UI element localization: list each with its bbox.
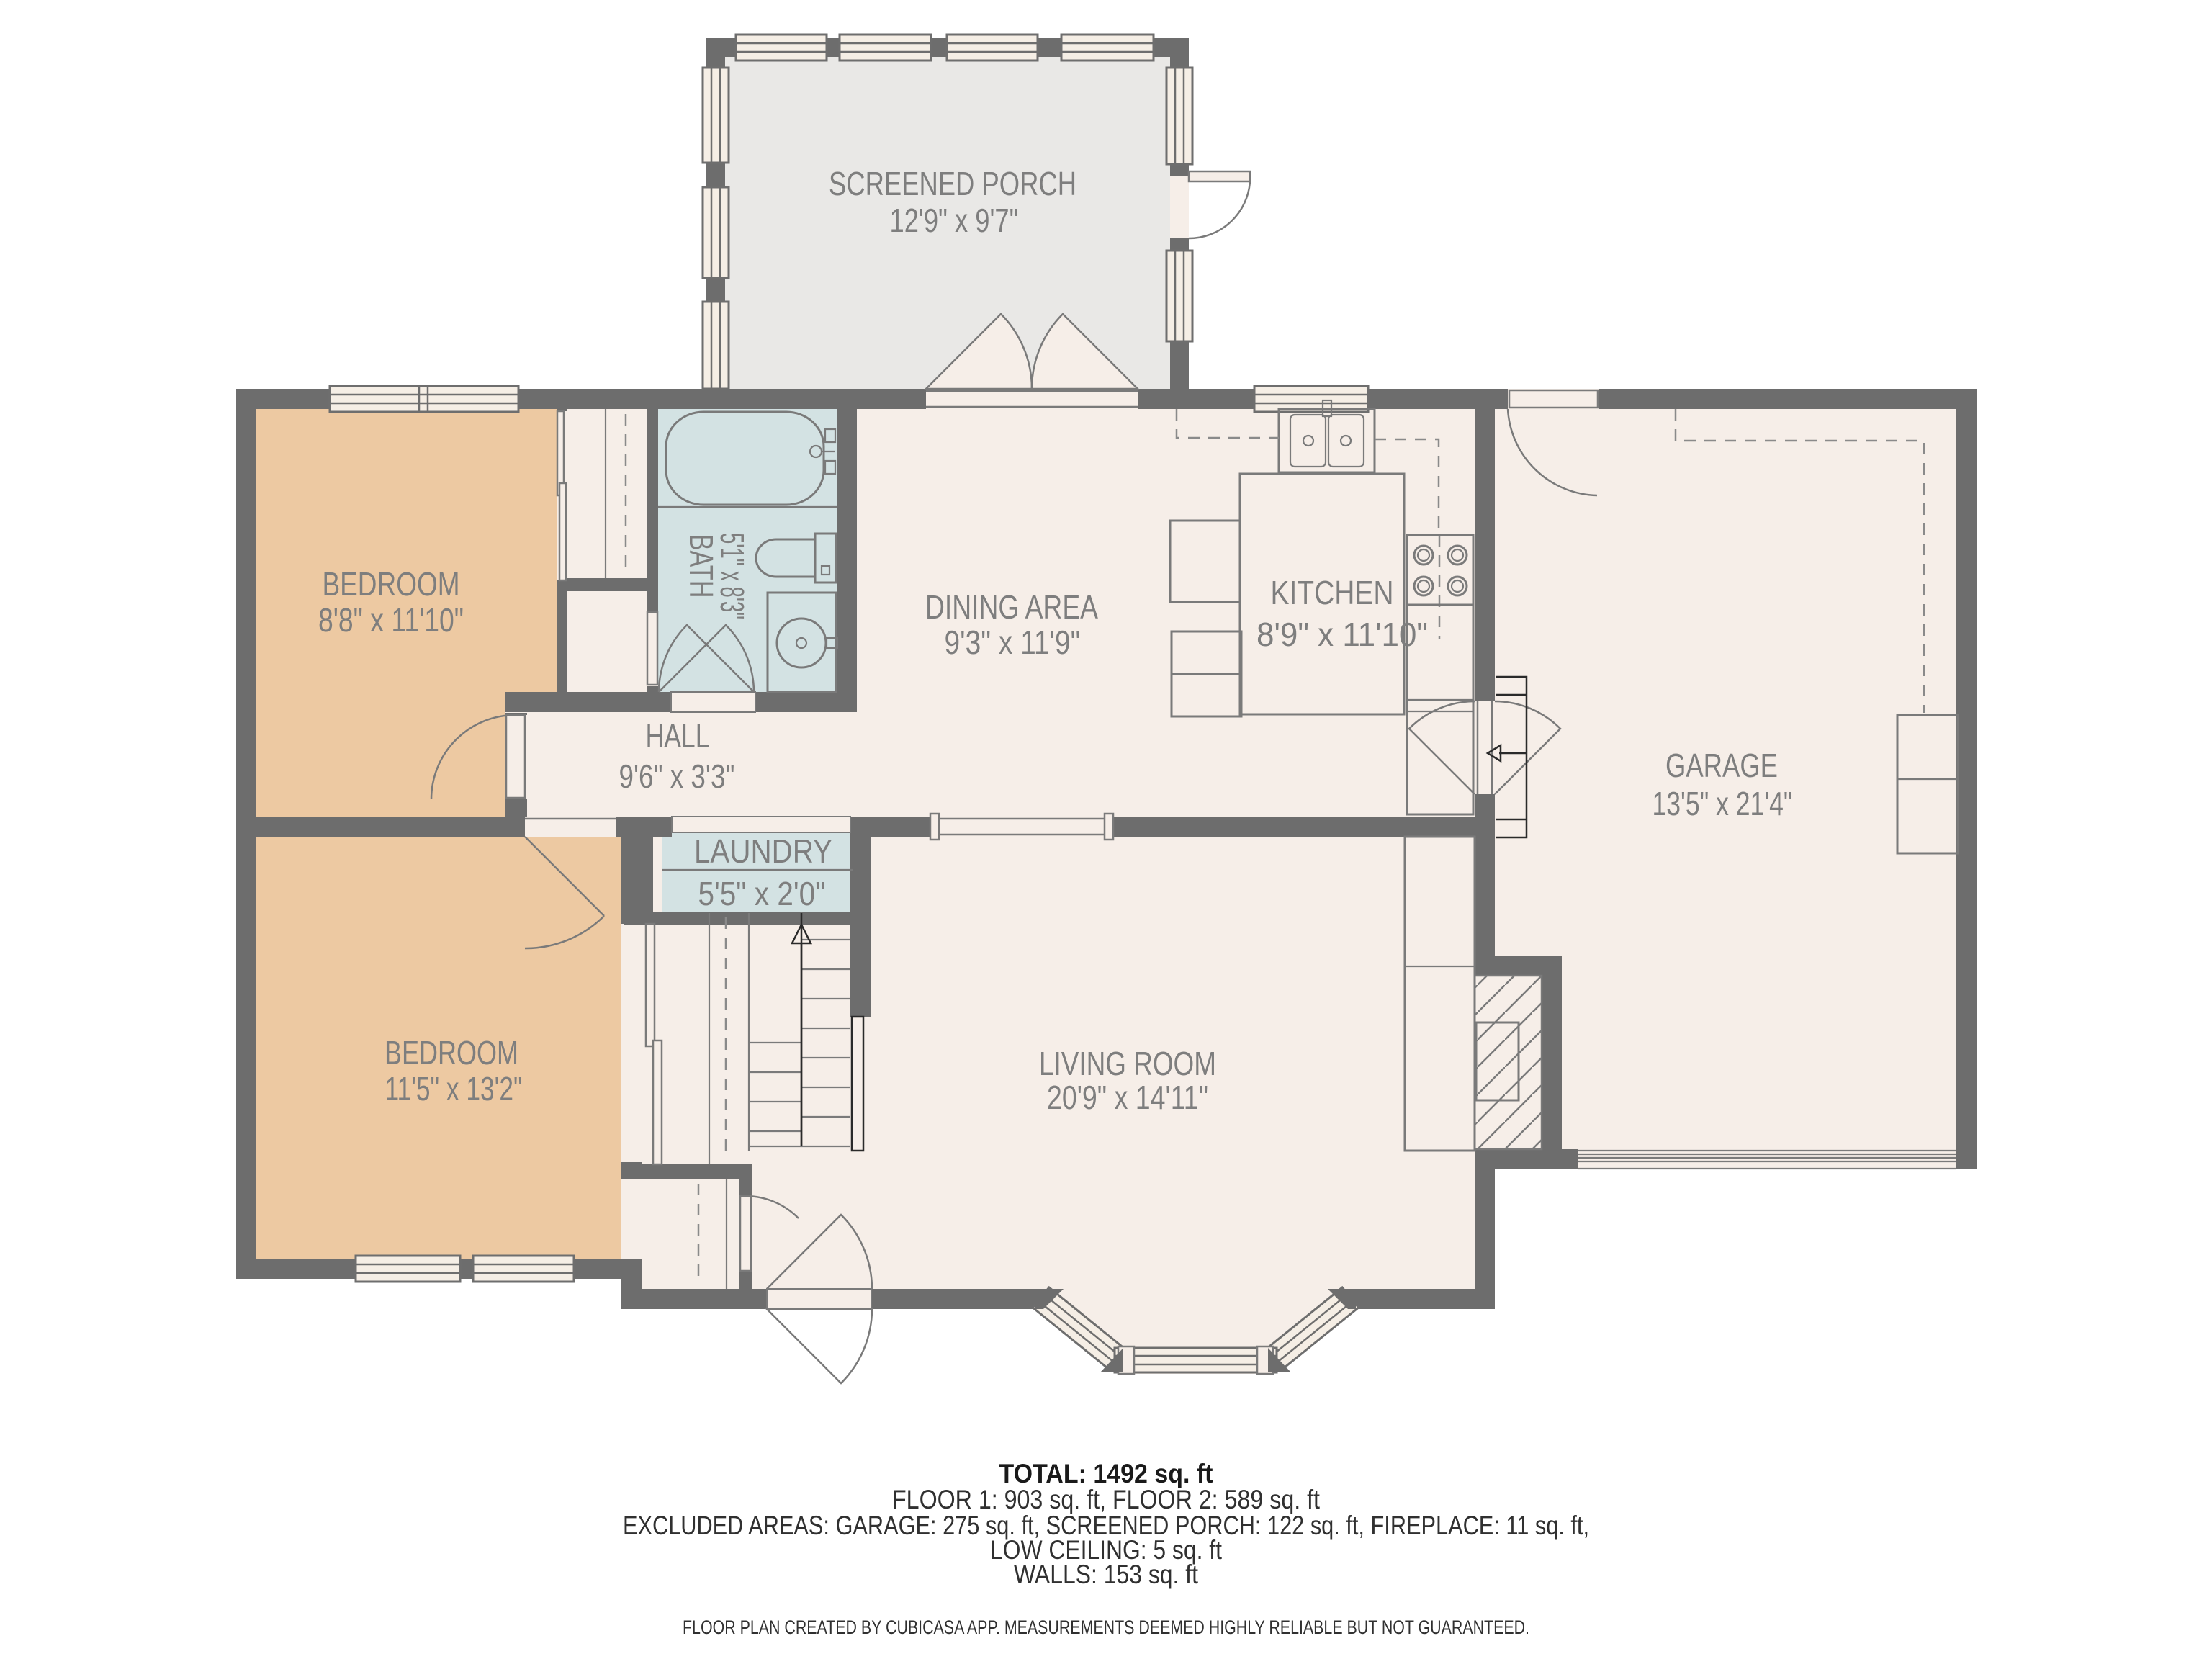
svg-text:TOTAL: 1492 sq. ft: TOTAL: 1492 sq. ft: [999, 1459, 1213, 1488]
svg-text:LIVING ROOM: LIVING ROOM: [1039, 1045, 1216, 1082]
svg-text:HALL: HALL: [646, 717, 710, 755]
svg-text:8'8" x 11'10": 8'8" x 11'10": [318, 601, 464, 639]
svg-text:FLOOR 1: 903 sq. ft, FLOOR 2:: FLOOR 1: 903 sq. ft, FLOOR 2: 589 sq. ft: [892, 1485, 1321, 1514]
svg-text:BEDROOM: BEDROOM: [323, 565, 460, 603]
svg-text:GARAGE: GARAGE: [1665, 747, 1778, 784]
svg-text:5'1" x 8'3": 5'1" x 8'3": [714, 533, 751, 619]
svg-text:SCREENED PORCH: SCREENED PORCH: [829, 165, 1076, 202]
svg-text:BEDROOM: BEDROOM: [385, 1034, 518, 1071]
svg-text:11'5" x 13'2": 11'5" x 13'2": [385, 1070, 523, 1107]
svg-text:WALLS: 153 sq. ft: WALLS: 153 sq. ft: [1014, 1560, 1199, 1589]
svg-text:DINING AREA: DINING AREA: [925, 588, 1098, 626]
svg-text:KITCHEN: KITCHEN: [1271, 574, 1394, 611]
svg-text:FLOOR PLAN CREATED BY CUBICASA: FLOOR PLAN CREATED BY CUBICASA APP. MEAS…: [683, 1617, 1529, 1638]
svg-text:LAUNDRY: LAUNDRY: [694, 832, 832, 870]
svg-text:9'6" x 3'3": 9'6" x 3'3": [619, 757, 735, 795]
svg-text:12'9" x 9'7": 12'9" x 9'7": [890, 202, 1019, 239]
svg-text:5'5" x 2'0": 5'5" x 2'0": [698, 875, 826, 912]
svg-text:8'9" x 11'10": 8'9" x 11'10": [1256, 616, 1428, 653]
svg-text:9'3" x 11'9": 9'3" x 11'9": [945, 624, 1081, 661]
svg-text:20'9" x 14'11": 20'9" x 14'11": [1047, 1079, 1208, 1116]
svg-text:13'5" x 21'4": 13'5" x 21'4": [1653, 785, 1793, 822]
